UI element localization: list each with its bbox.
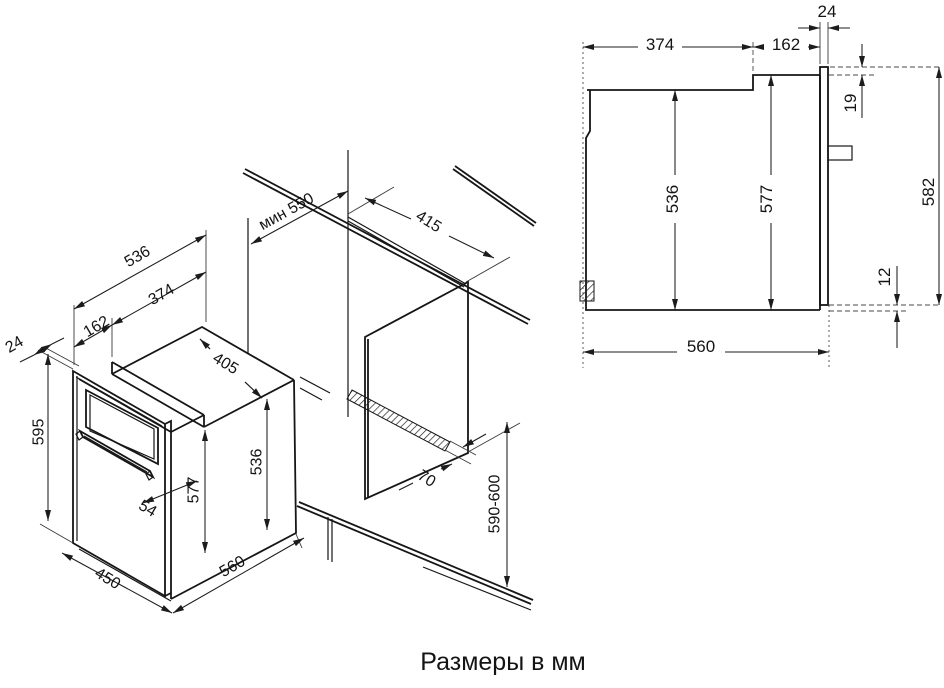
svg-text:54: 54 [135,497,159,521]
side-view-dimensions: 374 162 24 19 536 577 582 12 560 [583,2,940,370]
oven-top-step [112,362,204,427]
svg-text:536: 536 [663,185,682,213]
side-view-mounting-bracket [580,281,594,301]
technical-drawing-canvas: 536 374 162 24 595 450 560 54 577 536 40… [0,0,944,688]
dim-iso-rear-height: 536 [249,449,266,476]
units-caption: Размеры в мм [420,648,585,676]
side-view-door-panel [820,67,828,305]
svg-text:162: 162 [81,313,113,341]
dim-side-depth-rear: 374 [638,34,682,54]
niche-floor-rear-edge [300,377,330,400]
cabinet-base-left-corner [328,517,332,562]
iso-view: 536 374 162 24 595 450 560 54 577 536 40… [3,150,536,613]
svg-text:405: 405 [210,350,242,378]
svg-text:70: 70 [414,467,438,491]
vent-slot-hatch [347,390,450,451]
dim-side-body-height: 577 [756,175,776,223]
technical-drawing-page: 536 374 162 24 595 450 560 54 577 536 40… [0,0,944,688]
dim-iso-vent-gap: 70 [414,467,438,491]
svg-text:590-600: 590-600 [487,475,504,534]
wall-edge-upper-right [453,166,536,226]
dim-iso-depth-front: 162 [81,313,113,341]
dim-iso-top-width: 405 [210,350,242,378]
dim-iso-door-gap: 54 [135,497,159,521]
svg-text:162: 162 [772,35,800,54]
niche-side-panel [365,282,468,499]
side-view: 374 162 24 19 536 577 582 12 560 [580,2,940,370]
svg-text:595: 595 [31,419,48,446]
dim-side-door-height: 582 [919,178,938,206]
dim-iso-niche-height: 590-600 [487,475,504,534]
svg-text:12: 12 [875,268,894,287]
svg-text:374: 374 [646,35,674,54]
side-view-body-outline [586,75,820,310]
dim-iso-body-height: 577 [186,477,203,504]
cabinet-base-lower-edge [423,567,531,610]
svg-text:560: 560 [217,553,249,581]
dim-side-door-overhang-top: 19 [841,94,860,113]
dim-side-depth-front: 162 [764,34,808,54]
dim-iso-door-thickness: 24 [3,333,27,357]
dim-side-door-thickness: 24 [818,2,837,21]
oven-bottom-front-edge [79,549,171,601]
svg-text:577: 577 [757,185,776,213]
svg-text:24: 24 [3,333,27,357]
dim-side-body-depth: 560 [677,336,725,356]
svg-text:560: 560 [687,337,715,356]
svg-text:577: 577 [186,477,203,504]
dim-iso-niche-top-depth: 415 [413,208,445,237]
side-view-latch [828,146,852,160]
dim-iso-front-height: 595 [31,419,48,446]
dim-side-door-overhang-bottom: 12 [875,268,894,287]
svg-text:24: 24 [818,2,837,21]
oven-body-front-top-edge [79,379,171,432]
svg-text:415: 415 [413,208,445,237]
svg-text:582: 582 [919,178,938,206]
svg-text:374: 374 [146,281,178,309]
dim-iso-body-depth: 560 [217,553,249,581]
dim-side-rear-height: 536 [662,175,682,223]
dim-iso-depth-rear: 374 [146,281,178,309]
oven-door-window [86,390,158,464]
svg-text:19: 19 [841,94,860,113]
svg-text:536: 536 [249,449,266,476]
side-view-oven [580,67,852,310]
